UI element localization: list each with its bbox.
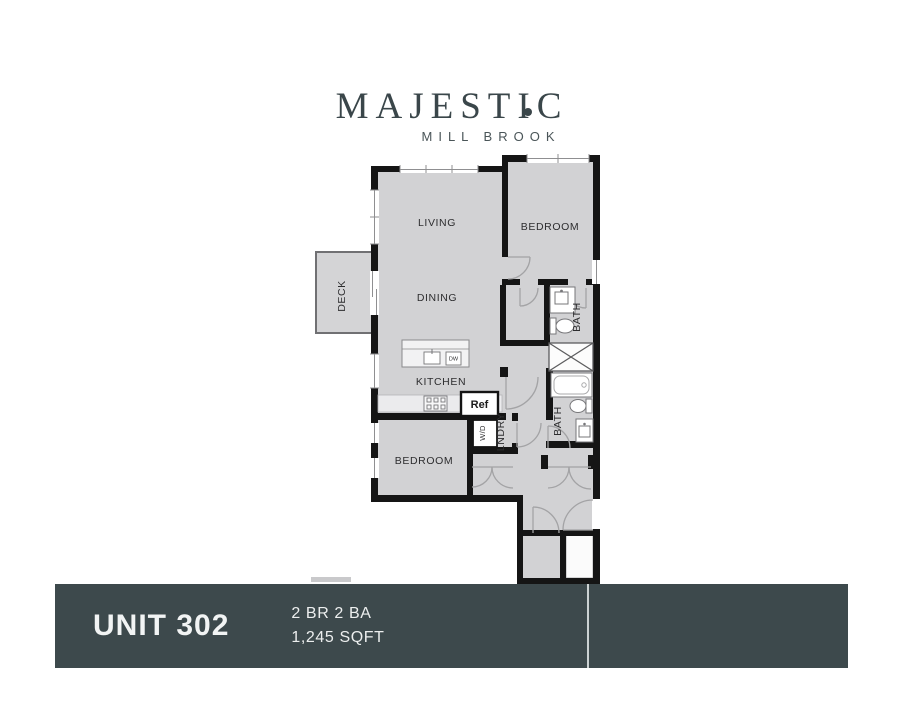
shower [549,343,593,371]
laundry-label: LNDRY [495,413,507,451]
bedroom1-label: BEDROOM [521,221,579,233]
floorplan-sheet: MAJESTIC MILL BROOK [0,0,904,724]
mech-closet [566,535,593,578]
footer-divider [587,584,589,668]
unit-details: 2 BR 2 BA 1,245 SQFT [291,602,384,650]
unit-bed-bath: 2 BR 2 BA [291,602,384,626]
bath1-label: BATH [571,302,583,332]
washer-dryer-label: W/D [478,425,487,441]
dishwasher-label: DW [449,357,459,363]
unit-sqft: 1,245 SQFT [291,626,384,650]
kitchen-counter: Ref [378,392,502,416]
bath2-label: BATH [552,406,564,436]
stove [424,396,447,411]
unit-number: UNIT 302 [93,609,229,643]
kitchen-island: DW [402,340,469,367]
scale-mark [311,577,351,582]
dining-label: DINING [417,292,457,304]
bedroom2-label: BEDROOM [395,455,453,467]
unit-info-bar: UNIT 302 2 BR 2 BA 1,245 SQFT [55,584,848,668]
kitchen-label: KITCHEN [416,376,466,388]
living-label: LIVING [418,217,456,229]
deck-label: DECK [336,280,348,312]
refrigerator-label: Ref [471,399,489,411]
laundry-closet: W/D [473,420,497,447]
